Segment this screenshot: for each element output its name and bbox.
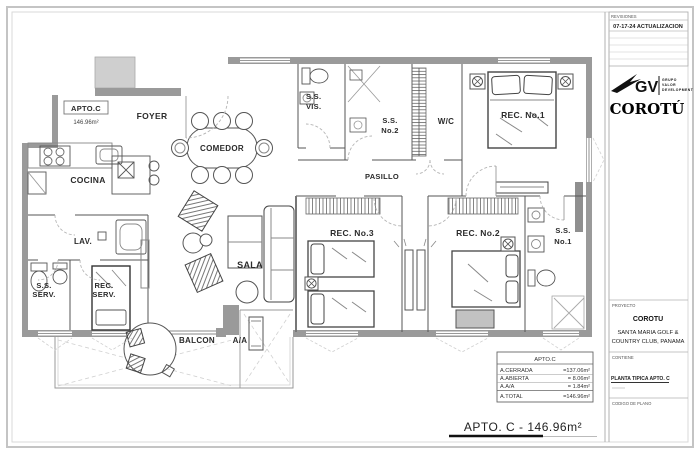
bedroom3-furniture	[305, 198, 380, 327]
label-rec-serv-1: REC.	[94, 281, 113, 290]
laundry-fixtures	[98, 220, 146, 254]
sheet-title: APTO. C - 146.96m²	[449, 420, 597, 437]
area-row-value: =146.96m²	[563, 394, 590, 400]
area-table: APTO.C A.CERRADA =137.06m² A.ABIERTA = 8…	[497, 352, 593, 402]
area-row-name: A.A/A	[500, 384, 515, 390]
label-pasillo: PASILLO	[365, 172, 399, 181]
living-room-furniture	[141, 191, 294, 303]
unit-tag-area: 146.96m²	[73, 120, 98, 126]
label-balcon: BALCON	[179, 336, 215, 345]
gv-sub-1: GRUPO	[662, 78, 677, 82]
kitchen-fixtures	[28, 143, 159, 194]
project-label: PROYECTO	[612, 303, 636, 308]
ac-condenser	[249, 317, 263, 350]
bench	[456, 310, 494, 328]
gv-sub-2: VALOR	[662, 83, 676, 87]
gv-monogram: GV	[635, 79, 658, 96]
label-aa: A/A	[233, 336, 248, 345]
corotu-logo: COROTÚ	[610, 100, 685, 118]
area-row-name: A.CERRADA	[500, 368, 533, 374]
area-row-name: A.ABIERTA	[500, 376, 529, 382]
label-ss-vis-1: S.S.	[306, 92, 321, 101]
area-row-name: A.TOTAL	[500, 394, 523, 400]
label-ss-no2-1: S.S.	[382, 116, 397, 125]
title-block: REVISIONES 07-17-24 ACTUALIZACION GV GRU…	[605, 12, 694, 442]
label-comedor: COMEDOR	[200, 144, 244, 153]
floor-plan: APTO.C 146.96m² FOYER COMEDOR COCINA LAV…	[22, 57, 604, 437]
label-sala: SALA	[237, 260, 263, 270]
gv-sub-3: DEVELOPMENT	[662, 88, 694, 92]
bath2-fixtures	[348, 66, 380, 132]
code-section: CODIGO DE PLANO	[609, 398, 688, 406]
bedroom2-furniture	[394, 198, 520, 328]
label-cocina: COCINA	[70, 175, 105, 185]
label-ss-serv-2: SERV.	[32, 290, 55, 299]
contains-section: CONTIENE PLANTA TIPICA APTO. C	[609, 352, 688, 388]
code-label: CODIGO DE PLANO	[612, 401, 652, 406]
area-row-value: =137.06m²	[563, 368, 590, 374]
area-table-header: APTO.C	[534, 357, 555, 363]
label-foyer: FOYER	[137, 111, 168, 121]
floor-plan-canvas: REVISIONES 07-17-24 ACTUALIZACION GV GRU…	[0, 0, 700, 453]
project-location-1: SANTA MARIA GOLF &	[617, 330, 678, 336]
wc-closet	[412, 68, 426, 156]
label-ss-vis-2: VIS.	[306, 102, 321, 111]
label-ss-no1-1: S.S.	[555, 226, 570, 235]
area-row-value: = 8.06m²	[568, 376, 590, 382]
revisions-table: REVISIONES 07-17-24 ACTUALIZACION	[609, 12, 688, 66]
label-lav: LAV.	[74, 237, 92, 246]
unit-tag: APTO.C 146.96m²	[64, 101, 108, 126]
project-section: PROYECTO COROTU SANTA MARIA GOLF & COUNT…	[609, 300, 688, 345]
label-rec-no1: REC. No.1	[501, 110, 545, 120]
project-location-2: COUNTRY CLUB, PANAMA	[612, 339, 685, 345]
label-rec-serv-2: SERV.	[92, 290, 115, 299]
drawing-sheet: REVISIONES 07-17-24 ACTUALIZACION GV GRU…	[0, 0, 700, 453]
label-ss-no1-2: No.1	[554, 237, 571, 246]
contains-value: PLANTA TIPICA APTO. C	[611, 376, 670, 382]
project-name: COROTU	[633, 316, 663, 323]
logo-block: GV GRUPO VALOR DEVELOPMENT COROTÚ	[610, 74, 694, 118]
sheet-title-text: APTO. C - 146.96m²	[464, 420, 582, 434]
label-ss-serv-1: S.S.	[36, 281, 51, 290]
area-row-value: = 1.84m²	[568, 384, 590, 390]
contains-label: CONTIENE	[612, 355, 634, 360]
unit-tag-name: APTO.C	[71, 104, 101, 113]
bedroom1-furniture	[470, 72, 573, 193]
revision-entry: 07-17-24 ACTUALIZACION	[613, 24, 683, 30]
label-ss-no2-2: No.2	[381, 126, 398, 135]
label-rec-no2: REC. No.2	[456, 228, 500, 238]
label-rec-no3: REC. No.3	[330, 228, 374, 238]
label-wc: W/C	[438, 117, 454, 126]
revisions-header: REVISIONES	[611, 14, 637, 19]
balcony-furniture	[124, 317, 263, 377]
